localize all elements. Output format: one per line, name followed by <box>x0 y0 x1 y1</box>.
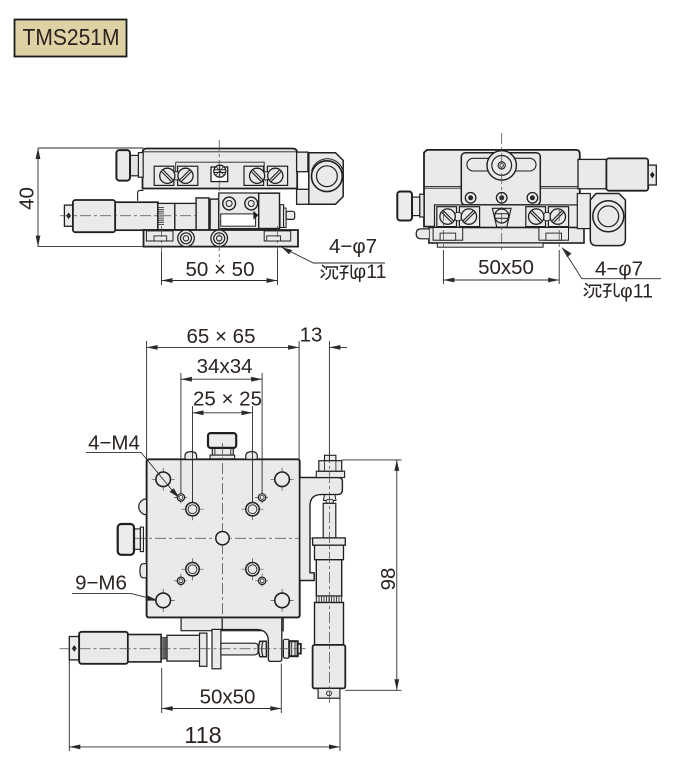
svg-text:φ11: φ11 <box>620 281 653 303</box>
svg-text:13: 13 <box>300 323 323 346</box>
svg-text:9−M6: 9−M6 <box>75 571 127 594</box>
svg-text:25 × 25: 25 × 25 <box>193 388 262 411</box>
svg-text:118: 118 <box>184 722 221 748</box>
svg-text:50 × 50: 50 × 50 <box>186 258 255 281</box>
svg-text:φ11: φ11 <box>354 261 387 283</box>
svg-text:98: 98 <box>377 568 400 591</box>
svg-text:4−M4: 4−M4 <box>88 431 140 454</box>
svg-text:40: 40 <box>16 187 39 210</box>
svg-text:65 × 65: 65 × 65 <box>187 325 256 348</box>
svg-text:4−φ7: 4−φ7 <box>329 235 377 258</box>
svg-text:50x50: 50x50 <box>478 256 534 279</box>
svg-text:50x50: 50x50 <box>200 686 256 709</box>
svg-text:4−φ7: 4−φ7 <box>595 258 643 281</box>
svg-text:TMS251M: TMS251M <box>23 24 120 50</box>
svg-text:34x34: 34x34 <box>197 355 253 378</box>
